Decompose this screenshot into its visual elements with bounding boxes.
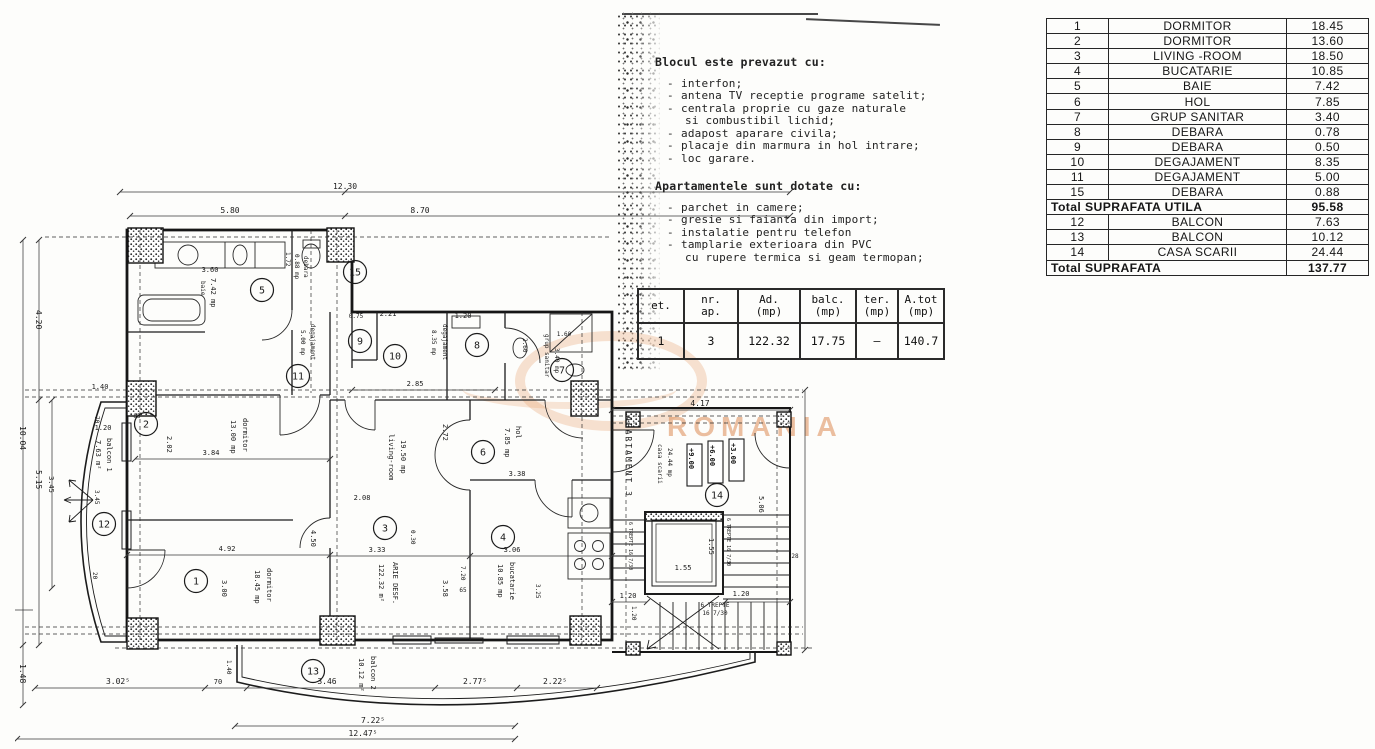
room-number-label: 14 <box>711 491 723 502</box>
room-area-cell: 13.60 <box>1287 34 1369 49</box>
room-number-cell: 10 <box>1047 154 1109 169</box>
plan-dimension-label: balcon 2 <box>369 656 377 690</box>
summary-header-cell: Ad.(mp) <box>738 289 800 323</box>
plan-dimension-label: 12.47⁵ <box>349 729 378 738</box>
total-label-cell: Total SUPRAFATA <box>1047 260 1287 275</box>
table-row: Total SUPRAFATA137.77 <box>1047 260 1369 275</box>
plan-dimension-label: 3.46 <box>317 677 336 686</box>
plan-dimension-label: 1.60 <box>557 331 572 338</box>
plan-dimension-label: 28 <box>791 553 799 560</box>
room-number-cell: 3 <box>1047 49 1109 64</box>
building-notes: Blocul este prevazut cu: -interfon;-ante… <box>655 56 965 264</box>
room-area-cell: 24.44 <box>1287 245 1369 260</box>
room-name-cell: BUCATARIE <box>1109 64 1287 79</box>
plan-dimension-label: 4.20 <box>34 310 43 329</box>
table-row: 9DEBARA0.50 <box>1047 139 1369 154</box>
room-number-label: 5 <box>259 286 265 297</box>
plan-dimension-label: 0.30 <box>409 530 416 545</box>
table-row: 2DORMITOR13.60 <box>1047 34 1369 49</box>
plan-dimension-label: 1.40 <box>92 383 109 391</box>
table-row: 14CASA SCARII24.44 <box>1047 245 1369 260</box>
plan-dimension-label: 8.35 mp <box>430 330 437 356</box>
plan-dimension-label: 6 TREPTE <box>701 602 730 609</box>
plan-dimension-label: 3.45 <box>47 476 55 493</box>
plan-dimension-label: 4.92 <box>219 545 236 553</box>
plan-dimension-label: 3.00 <box>220 580 228 597</box>
plan-dimension-label: 16 7/30 <box>702 610 728 617</box>
plan-dimension-label: 3.60 <box>202 266 219 274</box>
room-area-cell: 5.00 <box>1287 169 1369 184</box>
room-area-cell: 10.12 <box>1287 230 1369 245</box>
plan-dimension-label: 1.20 <box>455 312 472 320</box>
plan-dimension-label: 6 TREPTE 16 7/30 <box>725 518 731 566</box>
plan-dimension-label: 2.72 <box>441 424 449 441</box>
plan-dimension-label: baie <box>199 281 206 296</box>
room-number-label: 6 <box>480 448 486 459</box>
room-area-cell: 7.85 <box>1287 94 1369 109</box>
room-name-cell: DEGAJAMENT <box>1109 169 1287 184</box>
notes-apart-items: -parchet in camere;-gresie si faianta di… <box>655 202 965 265</box>
plan-dimension-label: 2.22⁵ <box>543 677 567 686</box>
plan-dimension-label: 3.58 <box>441 580 449 597</box>
room-name-cell: HOL <box>1109 94 1287 109</box>
plan-dimension-label: 5.06 <box>757 496 765 513</box>
room-name-cell: DEBARA <box>1109 185 1287 200</box>
plan-dimension-label: 7.42 mp <box>209 278 217 308</box>
plan-dimension-label: debara <box>302 256 309 278</box>
table-row: 7GRUP SANITAR3.40 <box>1047 109 1369 124</box>
summary-header-cell: A.tot(mp) <box>898 289 944 323</box>
plan-dimension-label: +6.00 <box>708 445 716 466</box>
plan-dimension-label: degajament <box>309 324 316 361</box>
plan-dimension-label: +3.00 <box>729 443 737 464</box>
plan-dimension-label: APARTAMENT 3 <box>624 416 633 498</box>
room-number-cell: 8 <box>1047 124 1109 139</box>
room-number-label: 12 <box>98 520 110 531</box>
apartment-summary-table: et.nr.ap.Ad.(mp)balc.(mp)ter.(mp)A.tot(m… <box>637 288 945 360</box>
plan-dimension-label: 7.63 m² <box>94 440 102 470</box>
room-name-cell: GRUP SANITAR <box>1109 109 1287 124</box>
notes-block-title: Blocul este prevazut cu: <box>655 56 965 69</box>
total-label-cell: Total SUPRAFATA UTILA <box>1047 200 1287 215</box>
plan-dimension-label: 2.02 <box>165 436 173 453</box>
plan-dimension-label: 8.70 <box>410 206 429 215</box>
plan-dimension-label: 2.21 <box>380 310 397 318</box>
table-row: 3LIVING -ROOM18.50 <box>1047 49 1369 64</box>
plan-dimension-label: degajament <box>441 324 448 361</box>
plan-dimension-label: 2.77⁵ <box>463 677 487 686</box>
plan-dimension-label: 0.88 mp <box>293 254 300 280</box>
plan-dimension-label: living-room <box>387 434 395 480</box>
total-area-cell: 137.77 <box>1287 260 1369 275</box>
total-area-cell: 95.58 <box>1287 200 1369 215</box>
table-row: 8DEBARA0.78 <box>1047 124 1369 139</box>
room-number-label: 11 <box>292 372 304 383</box>
table-row: 12BALCON7.63 <box>1047 215 1369 230</box>
room-name-cell: CASA SCARII <box>1109 245 1287 260</box>
room-number-label: 8 <box>474 341 480 352</box>
plan-dimension-label: 70 <box>214 678 222 686</box>
plan-dimension-label: 10.12 m² <box>357 658 365 692</box>
plan-dimension-label: 4.50 <box>309 530 317 547</box>
room-area-cell: 0.50 <box>1287 139 1369 154</box>
plan-dimension-label: 1.55 <box>675 564 692 572</box>
room-name-cell: DEGAJAMENT <box>1109 154 1287 169</box>
room-area-cell: 3.40 <box>1287 109 1369 124</box>
plan-dimension-label: 3.45 <box>93 490 100 505</box>
table-row: 5BAIE7.42 <box>1047 79 1369 94</box>
plan-dimension-label: 3.33 <box>369 546 386 554</box>
note-line: cu rupere termica si geam termopan; <box>655 252 965 265</box>
plan-dimension-label: hol <box>514 426 522 439</box>
room-number-cell: 14 <box>1047 245 1109 260</box>
room-area-cell: 8.35 <box>1287 154 1369 169</box>
room-number-cell: 12 <box>1047 215 1109 230</box>
plan-dimension-label: ARIE DESF. <box>391 562 399 604</box>
summary-header-cell: et. <box>638 289 684 323</box>
plan-dimension-label: 18.45 mp <box>253 570 261 604</box>
plan-dimension-label: 3.25 <box>534 584 541 599</box>
room-area-cell: 7.63 <box>1287 215 1369 230</box>
plan-dimension-label: 2.85 <box>407 380 424 388</box>
plan-dimension-label: balcon 1 <box>105 438 113 472</box>
summary-value-cell: 122.32 <box>738 323 800 359</box>
plan-dimension-label: 2.60 <box>521 338 528 353</box>
plan-dimension-label: 0.75 <box>349 313 364 320</box>
plan-dimension-label: 19.50 mp <box>399 440 407 474</box>
plan-dimension-label: 3.06 <box>504 546 521 554</box>
table-row: 6HOL7.85 <box>1047 94 1369 109</box>
room-area-cell: 18.50 <box>1287 49 1369 64</box>
room-number-label: 9 <box>357 337 363 348</box>
plan-dimension-label: 7.85 mp <box>503 428 511 458</box>
plan-dimension-label: dormitor <box>241 418 249 452</box>
room-name-cell: BALCON <box>1109 215 1287 230</box>
plan-dimension-label: 1.20 <box>630 606 637 621</box>
summary-value-cell: 17.75 <box>800 323 856 359</box>
table-row: 15DEBARA0.88 <box>1047 185 1369 200</box>
plan-labels: 12.305.808.703.602.852.210.751.201.201.4… <box>18 182 799 738</box>
plan-dimension-label: 7.20 <box>459 566 466 581</box>
notes-apart-title: Apartamentele sunt dotate cu: <box>655 180 965 193</box>
room-number-label: 1 <box>193 577 199 588</box>
plan-dimension-label: 4.17 <box>690 399 709 408</box>
plan-dimension-label: 1.40 <box>225 660 232 675</box>
summary-header-cell: nr.ap. <box>684 289 738 323</box>
plan-dimension-label: 20 <box>91 572 98 580</box>
plan-dimension-label: 3.02⁵ <box>106 677 130 686</box>
room-number-cell: 11 <box>1047 169 1109 184</box>
summary-value-cell: 1 <box>638 323 684 359</box>
note-line: -loc garare. <box>655 153 965 166</box>
plan-dimension-label: 1.48 <box>18 664 27 683</box>
plan-dimension-label: +9.00 <box>687 448 695 469</box>
room-name-cell: DEBARA <box>1109 124 1287 139</box>
summary-value-cell: 3 <box>684 323 738 359</box>
plan-dimension-label: bucatarie <box>508 562 516 600</box>
plan-dimension-label: 122.32 m² <box>377 564 385 602</box>
room-area-cell: 0.88 <box>1287 185 1369 200</box>
plan-dimension-label: 10.04 <box>18 426 27 450</box>
summary-value-cell: – <box>856 323 898 359</box>
table-row: 10DEGAJAMENT8.35 <box>1047 154 1369 169</box>
plan-dimension-label: 1.20 <box>733 590 750 598</box>
room-number-cell: 5 <box>1047 79 1109 94</box>
table-row: Total SUPRAFATA UTILA95.58 <box>1047 200 1369 215</box>
room-number-cell: 7 <box>1047 109 1109 124</box>
table-row: 4BUCATARIE10.85 <box>1047 64 1369 79</box>
plan-dimension-label: 3.38 <box>509 470 526 478</box>
summary-header-cell: balc.(mp) <box>800 289 856 323</box>
room-number-cell: 4 <box>1047 64 1109 79</box>
room-name-cell: BALCON <box>1109 230 1287 245</box>
room-name-cell: BAIE <box>1109 79 1287 94</box>
plan-dimension-label: 24.44 mp <box>666 448 673 477</box>
plan-dimension-label: casa scarii <box>656 444 663 484</box>
plan-dimension-label: 12.30 <box>333 182 357 191</box>
room-number-cell: 2 <box>1047 34 1109 49</box>
room-number-cell: 13 <box>1047 230 1109 245</box>
plan-dimension-label: 1.20 <box>620 592 637 600</box>
plan-dimension-label: 6 TREPTE 16 7/30 <box>627 522 633 570</box>
room-area-cell: 10.85 <box>1287 64 1369 79</box>
plan-dimension-label: 7.22⁵ <box>361 716 385 725</box>
staircase-elevator <box>612 439 790 650</box>
summary-header-cell: ter.(mp) <box>856 289 898 323</box>
summary-value-cell: 140.7 <box>898 323 944 359</box>
table-row: 1DORMITOR18.45 <box>1047 19 1369 34</box>
room-number-label: 10 <box>389 352 401 363</box>
scanned-floor-plan-page: ROMANIA <box>0 0 1375 749</box>
room-number-cell: 6 <box>1047 94 1109 109</box>
room-area-cell: 18.45 <box>1287 19 1369 34</box>
plan-dimension-label: 3.84 <box>203 449 220 457</box>
room-number-cell: 15 <box>1047 185 1109 200</box>
plan-dimension-label: dormitor <box>265 568 273 602</box>
plan-dimension-label: 13.00 mp <box>229 420 237 454</box>
plan-dimension-label: 1.55 <box>707 538 715 555</box>
room-name-cell: LIVING -ROOM <box>1109 49 1287 64</box>
plan-dimension-label: 5.15 <box>34 470 43 489</box>
plan-dimension-label: 5.80 <box>220 206 239 215</box>
room-number-label: 15 <box>349 268 361 279</box>
plan-dimension-label: 65 <box>459 587 467 594</box>
plan-dimension-label: grup sanitar <box>543 334 550 378</box>
room-area-cell: 7.42 <box>1287 79 1369 94</box>
room-number-label: 7 <box>559 366 565 377</box>
plan-dimension-label: 70 <box>93 416 100 424</box>
room-number-label: 13 <box>307 667 319 678</box>
room-number-label: 2 <box>143 420 149 431</box>
plan-dimension-label: 5.00 mp <box>299 330 306 356</box>
room-number-label: 4 <box>500 533 506 544</box>
plan-dimension-label: 1.20 <box>95 424 112 432</box>
room-name-cell: DORMITOR <box>1109 34 1287 49</box>
room-name-cell: DORMITOR <box>1109 19 1287 34</box>
scan-fold-line-diagonal <box>806 18 940 25</box>
plan-dimension-label: 2.08 <box>354 494 371 502</box>
room-area-cell: 0.78 <box>1287 124 1369 139</box>
room-areas-table: 1DORMITOR18.452DORMITOR13.603LIVING -ROO… <box>1046 18 1369 276</box>
table-row: 11DEGAJAMENT5.00 <box>1047 169 1369 184</box>
room-name-cell: DEBARA <box>1109 139 1287 154</box>
notes-block-items: -interfon;-antena TV receptie programe s… <box>655 78 965 166</box>
table-row: 13BALCON10.12 <box>1047 230 1369 245</box>
room-number-label: 3 <box>382 524 388 535</box>
room-number-cell: 1 <box>1047 19 1109 34</box>
plan-dimension-label: 1.72 <box>284 252 291 267</box>
room-number-cell: 9 <box>1047 139 1109 154</box>
plan-dimension-label: 10.85 mp <box>496 564 504 598</box>
